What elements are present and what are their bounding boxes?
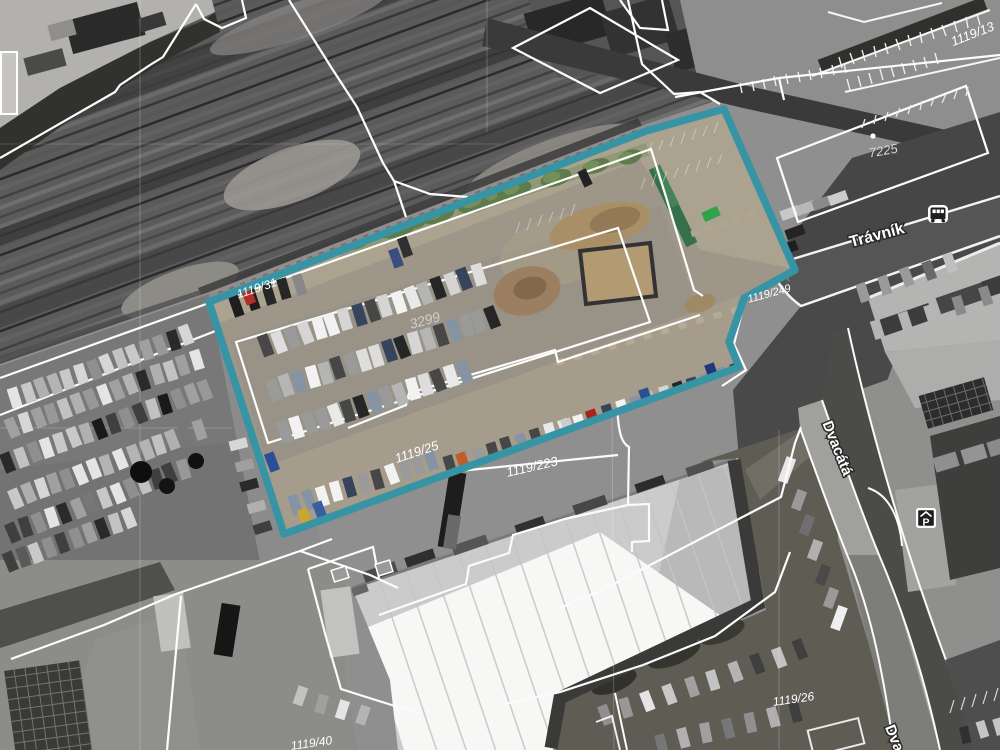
- svg-text:P: P: [922, 517, 929, 529]
